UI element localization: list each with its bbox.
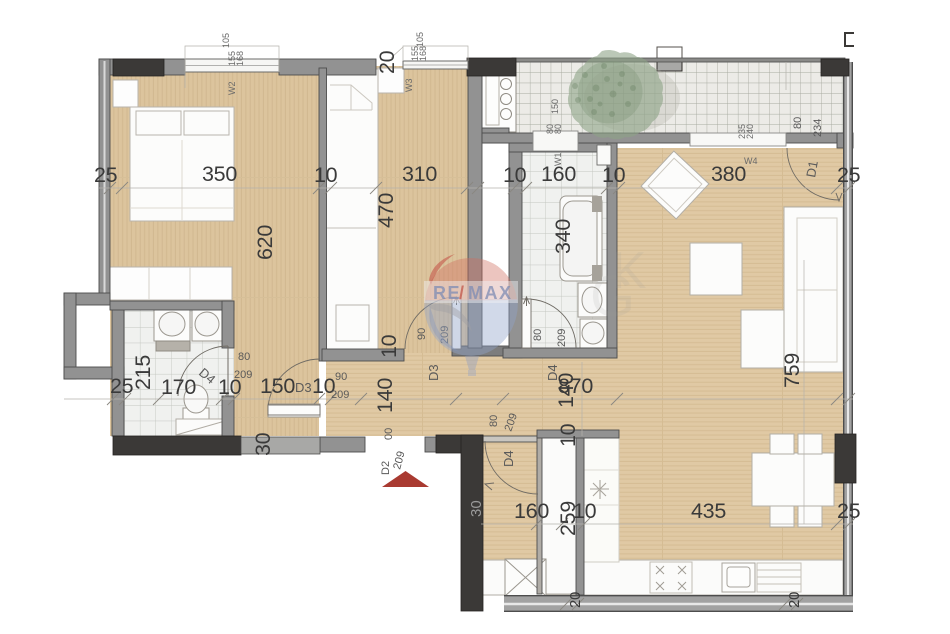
svg-text:80: 80 (792, 117, 804, 129)
svg-text:209: 209 (556, 329, 568, 347)
svg-text:D3: D3 (426, 364, 441, 381)
svg-text:D2: D2 (380, 461, 392, 475)
svg-text:105: 105 (415, 32, 425, 47)
svg-text:10: 10 (314, 163, 338, 187)
svg-text:435: 435 (691, 499, 726, 523)
svg-text:340: 340 (551, 219, 575, 254)
svg-text:20: 20 (786, 592, 803, 608)
svg-text:30: 30 (251, 432, 275, 456)
svg-text:80: 80 (238, 351, 250, 363)
svg-text:D1: D1 (803, 160, 821, 179)
svg-text:90: 90 (335, 371, 347, 383)
svg-text:209: 209 (331, 389, 349, 401)
svg-text:140: 140 (373, 378, 397, 413)
svg-text:D3: D3 (295, 380, 312, 395)
svg-text:10: 10 (377, 334, 401, 358)
svg-text:/: / (459, 283, 464, 303)
svg-text:10: 10 (503, 163, 527, 187)
svg-text:25: 25 (837, 499, 861, 523)
svg-text:234: 234 (812, 119, 824, 137)
svg-text:20: 20 (567, 592, 584, 608)
svg-text:D4: D4 (501, 450, 516, 467)
svg-text:K: K (612, 242, 647, 300)
svg-text:00: 00 (383, 428, 395, 440)
svg-text:105: 105 (221, 33, 231, 48)
svg-text:150: 150 (260, 374, 295, 398)
svg-text:W3: W3 (404, 79, 414, 93)
svg-text:W2: W2 (227, 82, 237, 96)
svg-text:25: 25 (94, 163, 118, 187)
svg-text:W4: W4 (744, 156, 758, 166)
svg-text:620: 620 (253, 225, 277, 260)
svg-text:D4: D4 (545, 364, 560, 381)
svg-text:350: 350 (202, 162, 237, 186)
svg-text:80: 80 (488, 415, 500, 427)
svg-text:240: 240 (745, 124, 755, 139)
svg-text:80: 80 (553, 124, 563, 134)
svg-text:90: 90 (416, 328, 428, 340)
svg-text:80: 80 (532, 329, 544, 341)
svg-text:310: 310 (402, 162, 437, 186)
svg-text:20: 20 (375, 50, 399, 74)
svg-text:168: 168 (235, 51, 245, 66)
svg-text:470: 470 (374, 193, 398, 228)
svg-text:25: 25 (837, 163, 861, 187)
svg-text:170: 170 (161, 375, 196, 399)
svg-text:215: 215 (131, 355, 155, 390)
svg-text:10: 10 (556, 423, 580, 447)
svg-text:30: 30 (468, 500, 485, 517)
svg-text:759: 759 (780, 353, 804, 388)
svg-text:RE: RE (433, 283, 461, 303)
svg-text:259: 259 (556, 501, 580, 536)
svg-text:160: 160 (514, 499, 549, 523)
svg-text:MAX: MAX (468, 283, 513, 303)
svg-text:10: 10 (602, 163, 626, 187)
svg-text:168: 168 (418, 46, 428, 61)
svg-text:209: 209 (234, 369, 252, 381)
svg-text:150: 150 (550, 99, 560, 114)
svg-text:W1: W1 (553, 153, 563, 167)
svg-text:380: 380 (711, 162, 746, 186)
